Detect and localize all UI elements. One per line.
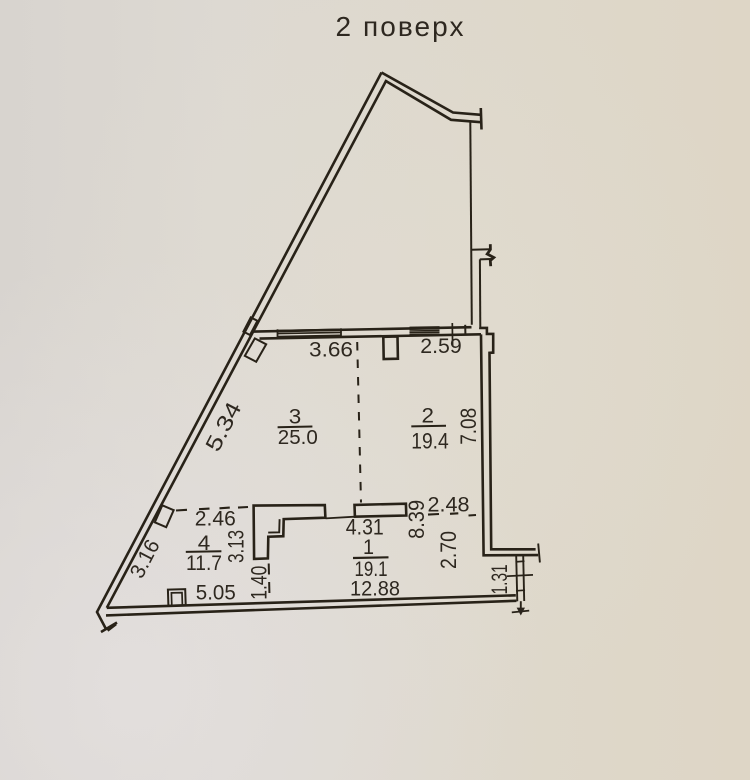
svg-text:12.88: 12.88 [350, 577, 400, 601]
svg-text:25.0: 25.0 [278, 426, 318, 449]
svg-text:1.31: 1.31 [487, 564, 512, 594]
svg-text:2: 2 [422, 405, 435, 428]
svg-text:11.7: 11.7 [186, 551, 222, 575]
svg-text:7.08: 7.08 [456, 408, 481, 445]
svg-text:3.13: 3.13 [224, 530, 249, 563]
svg-text:1.40: 1.40 [247, 566, 272, 600]
svg-text:8.39: 8.39 [404, 500, 429, 539]
svg-text:2 поверх: 2 поверх [336, 11, 466, 42]
svg-text:2.70: 2.70 [436, 531, 461, 569]
svg-text:2.59: 2.59 [420, 335, 462, 358]
svg-text:1: 1 [363, 536, 374, 559]
svg-text:2.48: 2.48 [428, 493, 470, 517]
svg-text:3.66: 3.66 [309, 339, 353, 362]
svg-text:5.05: 5.05 [196, 581, 236, 605]
svg-text:19.4: 19.4 [411, 429, 449, 454]
svg-text:2.46: 2.46 [195, 508, 236, 531]
